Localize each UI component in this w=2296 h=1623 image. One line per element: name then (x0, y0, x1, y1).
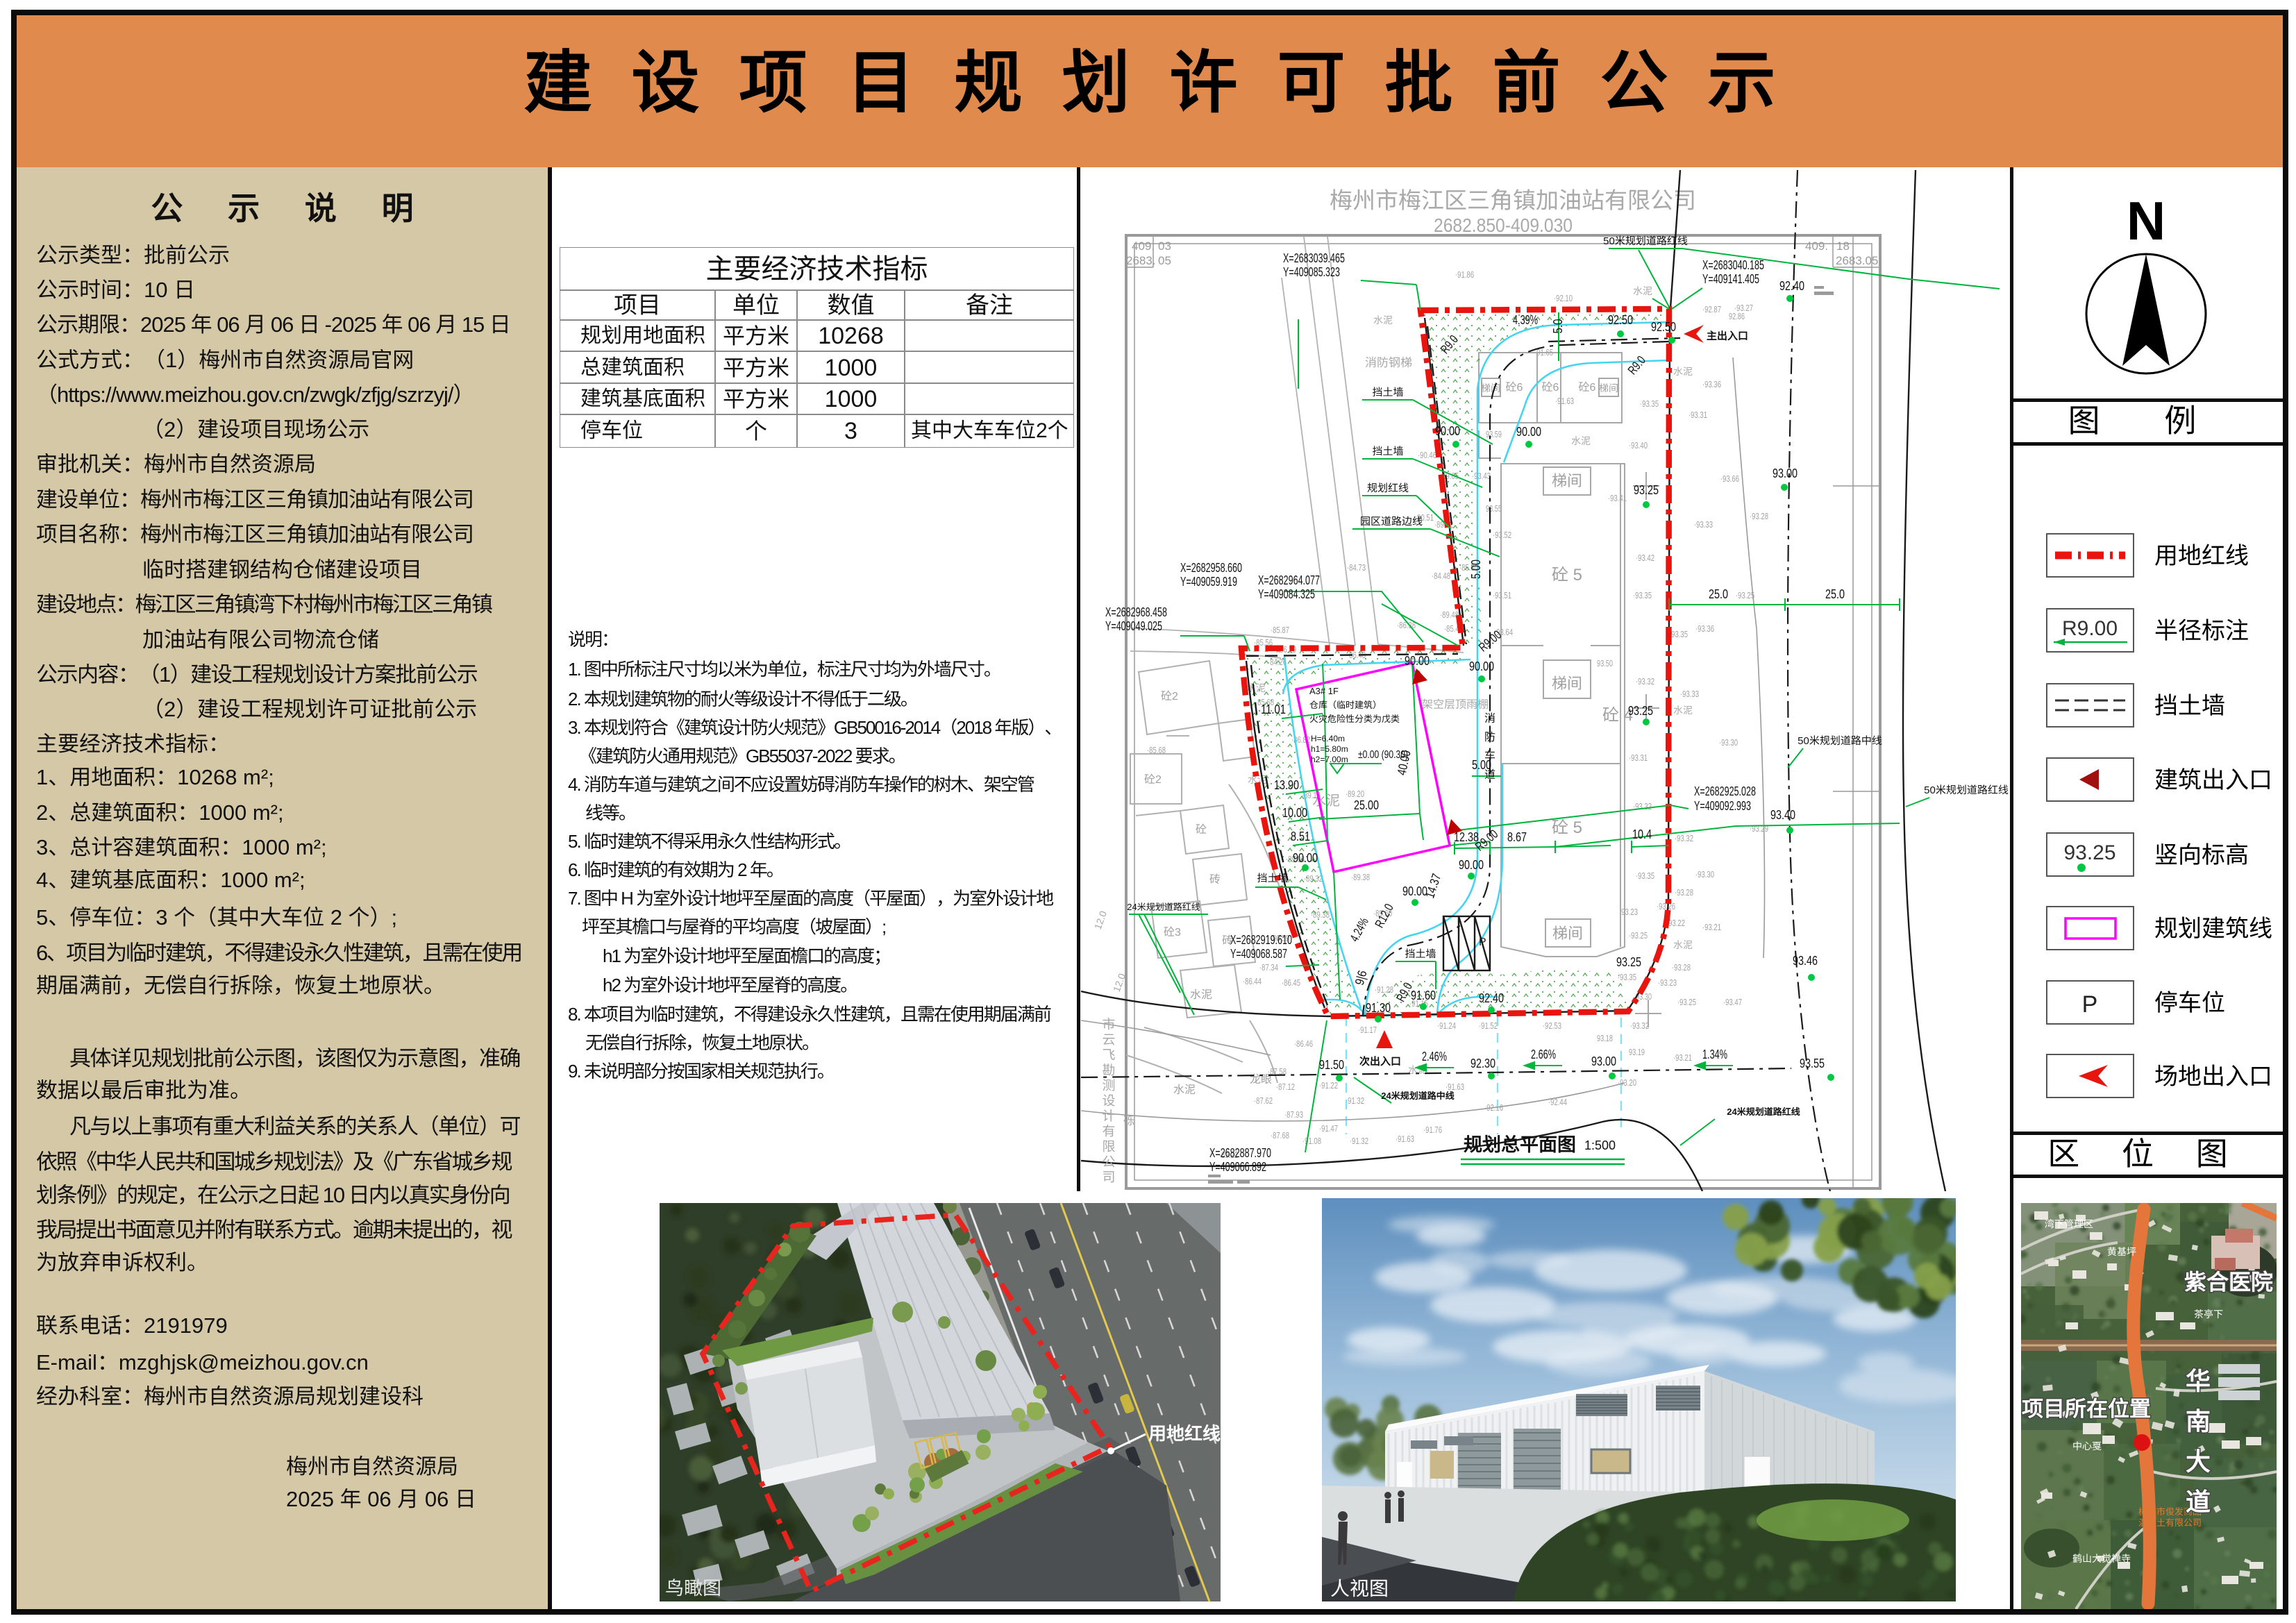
svg-text:·87.68: ·87.68 (1271, 1130, 1289, 1141)
svg-text:·93.33: ·93.33 (1680, 689, 1699, 699)
svg-text:Y=409066.892: Y=409066.892 (1209, 1160, 1266, 1174)
svg-text:梅州市梅江区三角镇加油站有限公司: 梅州市梅江区三角镇加油站有限公司 (1330, 187, 1696, 213)
svg-text:·92.53: ·92.53 (1543, 1020, 1561, 1031)
svg-text:砼 5: 砼 5 (1552, 566, 1582, 585)
svg-text:93.00: 93.00 (1591, 1054, 1616, 1068)
svg-text:挡土墙: 挡土墙 (2154, 693, 2225, 719)
svg-text:90.00: 90.00 (1469, 659, 1494, 673)
svg-text:·93.66: ·93.66 (1720, 473, 1739, 484)
svg-text:道: 道 (2186, 1488, 2211, 1516)
svg-text:·87.62: ·87.62 (1254, 1095, 1273, 1106)
svg-text:·93.25: ·93.25 (1677, 997, 1696, 1007)
svg-text:建筑出入口: 建筑出入口 (2154, 767, 2272, 793)
svg-text:4.24%: 4.24% (1347, 916, 1371, 944)
svg-text:1.34%: 1.34% (1702, 1048, 1727, 1061)
svg-text:X=2682887.970: X=2682887.970 (1209, 1146, 1271, 1160)
svg-text:H=6.40m: H=6.40m (1311, 734, 1345, 743)
svg-text:5.0: 5.0 (1551, 319, 1565, 334)
svg-text:·93.29: ·93.29 (1750, 823, 1768, 834)
svg-text:·93.47: ·93.47 (1723, 997, 1742, 1007)
svg-text:h2=7.00m: h2=7.00m (1311, 755, 1348, 764)
svg-text:测: 测 (1102, 1079, 1115, 1093)
svg-text:架空层顶雨棚: 架空层顶雨棚 (1422, 698, 1489, 711)
svg-text:砼3: 砼3 (1164, 926, 1181, 939)
svg-text:90.00: 90.00 (1405, 654, 1430, 668)
svg-text:公: 公 (1102, 1155, 1115, 1170)
svg-text:·92.44: ·92.44 (1548, 1097, 1567, 1107)
svg-text:91.50: 91.50 (1319, 1058, 1344, 1072)
svg-text:大: 大 (2186, 1447, 2211, 1476)
svg-text:水泥: 水泥 (1673, 366, 1693, 377)
svg-text:X=2682925.028: X=2682925.028 (1694, 784, 1756, 798)
svg-text:·92.10: ·92.10 (1554, 293, 1573, 303)
svg-text:梯间: 梯间 (1552, 925, 1583, 942)
svg-text:有: 有 (1102, 1125, 1115, 1139)
svg-text:设: 设 (1102, 1094, 1115, 1109)
svg-text:P: P (1479, 936, 1486, 948)
svg-text:黄基坪: 黄基坪 (2107, 1246, 2136, 1257)
svg-text:10.00: 10.00 (1282, 806, 1307, 820)
svg-text:X=2682964.077: X=2682964.077 (1258, 573, 1320, 587)
svg-text:飞: 飞 (1102, 1048, 1115, 1063)
svg-text:火灾危险性分类为戊类: 火灾危险性分类为戊类 (1309, 714, 1400, 724)
svg-text:·93.51: ·93.51 (1493, 590, 1511, 600)
svg-text:93.25: 93.25 (1634, 483, 1659, 497)
svg-text:·87.34: ·87.34 (1259, 962, 1278, 973)
svg-text:·93.32: ·93.32 (1630, 1020, 1649, 1031)
svg-text:·93.35: ·93.35 (1633, 590, 1652, 600)
svg-text:R9.0: R9.0 (1625, 353, 1648, 377)
svg-text:Y=409049.025: Y=409049.025 (1105, 619, 1162, 633)
svg-text:Y=409085.323: Y=409085.323 (1283, 265, 1340, 279)
svg-text:·86.46: ·86.46 (1294, 1038, 1313, 1049)
svg-text:1:500: 1:500 (1584, 1138, 1616, 1152)
svg-text:2682.850-409.030: 2682.850-409.030 (1434, 215, 1573, 236)
svg-text:南: 南 (2186, 1407, 2211, 1436)
svg-text:混凝土有限公司: 混凝土有限公司 (2138, 1517, 2202, 1528)
svg-text:道: 道 (1484, 768, 1495, 781)
svg-text:50米规划道路红线: 50米规划道路红线 (1603, 235, 1688, 247)
svg-text:03: 03 (1158, 239, 1171, 253)
svg-text:93.59: 93.59 (1486, 429, 1502, 439)
svg-text:·87.93: ·87.93 (1284, 1109, 1303, 1120)
svg-text:·93.25: ·93.25 (1629, 930, 1648, 941)
svg-text:24米规划道路红线: 24米规划道路红线 (1727, 1107, 1800, 1117)
svg-text:2.66%: 2.66% (1531, 1048, 1556, 1061)
svg-text:用地红线: 用地红线 (1148, 1423, 1221, 1444)
svg-text:·93.21: ·93.21 (1702, 922, 1721, 932)
svg-text:砼6: 砼6 (1542, 381, 1559, 394)
svg-text:主出入口: 主出入口 (1707, 330, 1748, 342)
svg-text:93.25: 93.25 (1628, 704, 1653, 718)
svg-text:92.40: 92.40 (1479, 991, 1504, 1005)
svg-text:·91.32: ·91.32 (1350, 1136, 1368, 1146)
svg-text:·93.27: ·93.27 (1734, 303, 1753, 313)
svg-text:湾下管理区: 湾下管理区 (2045, 1218, 2093, 1229)
svg-text:Y=409059.919: Y=409059.919 (1180, 575, 1237, 589)
svg-text:·91.52: ·91.52 (1479, 1020, 1498, 1031)
svg-text:·91.08: ·91.08 (1302, 1136, 1321, 1146)
svg-text:·93.52: ·93.52 (1493, 530, 1511, 540)
svg-text:93.46: 93.46 (1793, 954, 1818, 968)
svg-text:水泥: 水泥 (1173, 1084, 1196, 1096)
svg-text:92.50: 92.50 (1651, 320, 1676, 334)
svg-text:梯间: 梯间 (1552, 472, 1582, 489)
svg-text:13.90: 13.90 (1274, 778, 1299, 792)
svg-text:·93.41: ·93.41 (1608, 493, 1627, 503)
svg-text:勘: 勘 (1102, 1063, 1115, 1078)
svg-text:·93.28: ·93.28 (1672, 962, 1691, 973)
svg-text:Y=409084.325: Y=409084.325 (1258, 587, 1315, 601)
svg-text:X=2682919.610: X=2682919.610 (1230, 933, 1292, 947)
svg-text:·91.17: ·91.17 (1358, 1025, 1377, 1035)
svg-text:X=2683040.185: X=2683040.185 (1702, 258, 1764, 272)
svg-text:Y=409141.405: Y=409141.405 (1702, 272, 1759, 286)
svg-text:消: 消 (1484, 712, 1495, 725)
svg-text:93.18: 93.18 (1597, 1033, 1613, 1043)
svg-text:93.25: 93.25 (1616, 955, 1641, 969)
svg-text:25.0: 25.0 (1709, 587, 1728, 601)
svg-text:409.: 409. (1132, 239, 1155, 253)
svg-text:·93.31: ·93.31 (1689, 410, 1707, 420)
svg-text:挡土墙: 挡土墙 (1372, 387, 1403, 398)
svg-text:90.00: 90.00 (1516, 425, 1541, 439)
svg-text:·91.76: ·91.76 (1423, 1125, 1442, 1135)
svg-text:水泥: 水泥 (1373, 314, 1393, 326)
svg-text:92.40: 92.40 (1779, 279, 1804, 293)
svg-text:·89.20: ·89.20 (1346, 789, 1364, 799)
svg-text:竖向标高: 竖向标高 (2154, 842, 2249, 868)
svg-text:规划总平面图: 规划总平面图 (1464, 1134, 1576, 1155)
svg-text:·86.45: ·86.45 (1282, 977, 1300, 988)
svg-text:·90.46: ·90.46 (1418, 450, 1436, 460)
svg-text:±0.00 (90.30): ±0.00 (90.30) (1358, 749, 1408, 761)
svg-text:砼2: 砼2 (1144, 773, 1162, 786)
svg-text:·91.47: ·91.47 (1319, 1123, 1338, 1134)
svg-text:停车位: 停车位 (2154, 990, 2225, 1016)
svg-text:·91.24: ·91.24 (1437, 1020, 1456, 1031)
svg-text:挡土墙: 挡土墙 (1372, 446, 1403, 457)
svg-text:·93.35: ·93.35 (1636, 871, 1654, 881)
svg-text:X=2682968.458: X=2682968.458 (1105, 605, 1167, 619)
svg-text:8.51: 8.51 (1291, 830, 1310, 843)
svg-text:R12.0: R12.0 (1372, 902, 1396, 930)
svg-text:·93.33: ·93.33 (1694, 519, 1713, 530)
svg-text:93.55: 93.55 (1800, 1057, 1825, 1070)
svg-text:93.40: 93.40 (1770, 808, 1795, 822)
svg-text:·86.44: ·86.44 (1243, 976, 1262, 986)
svg-text:·93.30: ·93.30 (1695, 869, 1714, 880)
svg-text:·93.23: ·93.23 (1619, 907, 1638, 917)
svg-text:仓库（临时建筑）: 仓库（临时建筑） (1309, 700, 1382, 710)
svg-text:91.30: 91.30 (1366, 1001, 1391, 1015)
svg-text:05: 05 (1158, 254, 1171, 267)
svg-text:92.50: 92.50 (1608, 313, 1633, 327)
svg-text:8.67: 8.67 (1507, 830, 1527, 844)
svg-text:·84.48: ·84.48 (1432, 571, 1450, 581)
svg-text:图 例: 图 例 (2068, 403, 2224, 439)
svg-text:·91.63: ·91.63 (1555, 396, 1574, 406)
svg-text:·91.86: ·91.86 (1455, 269, 1474, 280)
svg-text:12.0: 12.0 (1092, 909, 1109, 931)
svg-text:梯间: 梯间 (1481, 382, 1500, 394)
svg-text:半径标注: 半径标注 (2154, 618, 2249, 644)
svg-text:25.00: 25.00 (1354, 798, 1379, 812)
svg-text:Y=409068.587: Y=409068.587 (1230, 947, 1287, 961)
svg-text:14.37: 14.37 (1423, 872, 1443, 900)
svg-text:93.25: 93.25 (2063, 841, 2115, 864)
svg-text:消防钢梯: 消防钢梯 (1365, 356, 1412, 369)
svg-text:·93.32: ·93.32 (1636, 676, 1654, 687)
svg-text:·93.28: ·93.28 (1750, 511, 1768, 521)
svg-text:·91.22: ·91.22 (1319, 1080, 1338, 1091)
svg-text:防: 防 (1484, 731, 1495, 743)
svg-text:90.00: 90.00 (1293, 851, 1318, 865)
svg-text:用地红线: 用地红线 (2154, 543, 2249, 569)
svg-text:·85.87: ·85.87 (1271, 625, 1289, 635)
svg-text:·93.35: ·93.35 (1669, 629, 1688, 639)
svg-text:华: 华 (2186, 1367, 2211, 1395)
svg-text:茶亭下: 茶亭下 (2194, 1309, 2223, 1320)
svg-text:93.00: 93.00 (1773, 466, 1798, 480)
svg-text:·93.35: ·93.35 (1640, 398, 1659, 409)
svg-text:·91.63: ·91.63 (1396, 1134, 1414, 1144)
svg-text:砼6: 砼6 (1506, 381, 1523, 394)
svg-text:梯间: 梯间 (1552, 675, 1582, 692)
svg-text:2.46%: 2.46% (1422, 1050, 1447, 1063)
svg-text:11.01: 11.01 (1261, 703, 1286, 716)
svg-text:园区道路边线: 园区道路边线 (1360, 516, 1423, 528)
svg-text:25.0: 25.0 (1825, 587, 1845, 601)
svg-text:砼 5: 砼 5 (1552, 818, 1582, 837)
svg-text:24米规划道路中线: 24米规划道路中线 (1381, 1091, 1454, 1101)
svg-text:X=2682958.660: X=2682958.660 (1180, 561, 1242, 575)
svg-text:司: 司 (1102, 1170, 1115, 1185)
svg-text:9|6: 9|6 (1352, 969, 1370, 986)
svg-text:水泥: 水泥 (1673, 939, 1693, 950)
svg-text:N: N (2127, 190, 2165, 251)
svg-text:·89.48: ·89.48 (1440, 609, 1459, 620)
svg-text:场地出入口: 场地出入口 (2154, 1063, 2272, 1090)
svg-text:93.19: 93.19 (1629, 1047, 1645, 1057)
svg-text:93.50: 93.50 (1597, 658, 1613, 668)
svg-text:挡土墙: 挡土墙 (1257, 873, 1288, 884)
svg-text:·93.32: ·93.32 (1675, 833, 1693, 843)
svg-text:云: 云 (1102, 1033, 1115, 1048)
svg-text:R9.00: R9.00 (2062, 617, 2118, 640)
svg-text:中心戛: 中心戛 (2072, 1440, 2102, 1452)
svg-text:Y=409092.993: Y=409092.993 (1694, 799, 1751, 813)
svg-text:规划红线: 规划红线 (1367, 482, 1409, 494)
svg-text:·93.23: ·93.23 (1658, 977, 1677, 988)
svg-text:规划建筑线: 规划建筑线 (2154, 916, 2272, 942)
svg-text:·87.12: ·87.12 (1276, 1082, 1295, 1092)
svg-text:·93.40: ·93.40 (1629, 440, 1648, 451)
svg-text:·93.31: ·93.31 (1629, 752, 1648, 763)
svg-text:计: 计 (1102, 1109, 1115, 1124)
svg-text:·92.87: ·92.87 (1702, 304, 1721, 314)
svg-text:50米规划道路中线: 50米规划道路中线 (1798, 735, 1882, 747)
svg-text:砾: 砾 (1123, 1115, 1134, 1127)
svg-text:水泥: 水泥 (1673, 705, 1693, 716)
svg-text:4.39%: 4.39% (1513, 313, 1538, 327)
svg-text:·93.30: ·93.30 (1719, 737, 1738, 748)
svg-text:限: 限 (1102, 1140, 1115, 1154)
svg-text:·93.42: ·93.42 (1636, 553, 1654, 563)
svg-text:·84.73: ·84.73 (1347, 562, 1366, 573)
svg-text:18: 18 (1836, 239, 1850, 253)
svg-text:2683.: 2683. (1126, 254, 1156, 267)
svg-text:93.55: 93.55 (1486, 503, 1502, 514)
svg-text:10.4: 10.4 (1632, 827, 1652, 841)
svg-text:市: 市 (1102, 1017, 1115, 1032)
svg-text:项目所在位置: 项目所在位置 (2022, 1397, 2151, 1421)
svg-text:·85.68: ·85.68 (1147, 745, 1166, 755)
svg-text:91.60: 91.60 (1411, 989, 1436, 1002)
svg-text:区 位 图: 区 位 图 (2047, 1136, 2245, 1172)
svg-text:90.00: 90.00 (1459, 858, 1484, 872)
svg-text:鹤山大觉禅寺: 鹤山大觉禅寺 (2072, 1553, 2131, 1564)
svg-text:409.: 409. (1805, 239, 1828, 253)
svg-text:92.30: 92.30 (1470, 1057, 1495, 1070)
svg-text:P: P (2082, 991, 2098, 1018)
svg-text:·93.25: ·93.25 (1736, 590, 1754, 600)
svg-text:X=2683039.465: X=2683039.465 (1283, 251, 1345, 265)
svg-text:A3# 1F: A3# 1F (1309, 686, 1339, 696)
svg-text:鸟瞰图: 鸟瞰图 (665, 1578, 721, 1599)
svg-text:·93.36: ·93.36 (1695, 623, 1714, 634)
svg-text:·89.38: ·89.38 (1351, 872, 1370, 882)
svg-text:2683.05: 2683.05 (1836, 254, 1878, 267)
svg-text:人视图: 人视图 (1330, 1578, 1389, 1599)
svg-text:·93.28: ·93.28 (1675, 887, 1693, 898)
svg-text:h1=5.80m: h1=5.80m (1311, 744, 1348, 754)
svg-text:·93.36: ·93.36 (1702, 379, 1721, 389)
svg-text:砼: 砼 (1196, 823, 1207, 836)
svg-text:梯间: 梯间 (1599, 382, 1618, 394)
svg-text:5.00: 5.00 (1469, 560, 1483, 579)
svg-text:砼2: 砼2 (1161, 690, 1178, 703)
svg-text:·91.32: ·91.32 (1346, 1095, 1364, 1106)
svg-text:24米规划道路红线: 24米规划道路红线 (1127, 902, 1200, 912)
svg-text:50米规划道路红线: 50米规划道路红线 (1924, 784, 2009, 796)
svg-text:车: 车 (1484, 750, 1495, 762)
svg-text:水泥: 水泥 (1633, 285, 1652, 296)
svg-text:砖: 砖 (1209, 873, 1221, 886)
svg-text:挡土墙: 挡土墙 (1405, 948, 1436, 960)
svg-text:砼6: 砼6 (1579, 381, 1596, 394)
svg-text:水泥: 水泥 (1190, 989, 1212, 1001)
svg-text:水泥: 水泥 (1571, 435, 1591, 446)
svg-text:紫合医院: 紫合医院 (2184, 1270, 2273, 1295)
svg-text:90.00: 90.00 (1435, 424, 1460, 438)
svg-text:次出入口: 次出入口 (1359, 1056, 1401, 1068)
svg-text:·93.21: ·93.21 (1673, 1052, 1692, 1063)
